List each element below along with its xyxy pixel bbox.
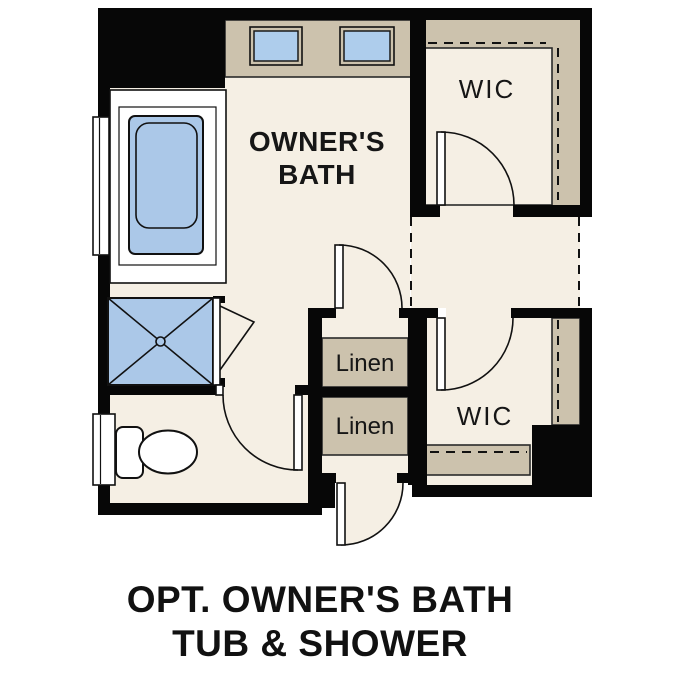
owners-bath-label-line1: OWNER'S bbox=[249, 126, 385, 157]
doorway-strip bbox=[440, 205, 513, 217]
door-panel bbox=[437, 318, 445, 390]
wall-bath-wic-divider bbox=[410, 20, 426, 205]
sink-basin bbox=[254, 31, 298, 61]
wic-bottom-label: WIC bbox=[457, 401, 514, 431]
door-jamb bbox=[216, 385, 223, 395]
bathtub-icon bbox=[110, 90, 226, 283]
wall-exit-right bbox=[397, 473, 412, 483]
wall-linen-divider bbox=[320, 387, 410, 397]
wic-top-shelving bbox=[424, 19, 580, 205]
plan-caption: OPT. OWNER'S BATH TUB & SHOWER bbox=[0, 578, 640, 666]
wic-bottom-shelf-right bbox=[552, 318, 580, 425]
toilet-icon bbox=[116, 427, 197, 478]
wic-bottom-shelf-bottom bbox=[423, 445, 530, 475]
wall-linen-right bbox=[408, 308, 427, 485]
wall-right-lower bbox=[580, 308, 592, 497]
tub-outer bbox=[129, 116, 203, 254]
owners-bath-label-line2: BATH bbox=[278, 159, 356, 190]
wall-toilet-top-left bbox=[108, 385, 223, 395]
wall-bottom-right bbox=[412, 485, 592, 497]
doorway-strip bbox=[336, 473, 402, 483]
wall-wic-corner-block bbox=[532, 425, 580, 485]
wall-wic-top-bottom bbox=[513, 205, 592, 217]
wall-bottom-left bbox=[98, 503, 322, 515]
door-panel bbox=[294, 395, 302, 470]
linen-top-label: Linen bbox=[336, 350, 395, 377]
door-swing-area bbox=[341, 483, 403, 545]
wall-top-left-block bbox=[98, 8, 225, 88]
passage-floor bbox=[411, 217, 580, 308]
wic-top-label: WIC bbox=[459, 74, 516, 104]
door-panel bbox=[337, 483, 345, 545]
shower-glass bbox=[213, 298, 220, 385]
wall-linen-left bbox=[308, 308, 322, 515]
plan-caption-line1: OPT. OWNER'S BATH bbox=[0, 578, 640, 622]
sink-basin bbox=[344, 31, 390, 61]
wall-top bbox=[225, 8, 592, 20]
wall-exit-jamb bbox=[320, 483, 335, 508]
window-icon bbox=[93, 414, 115, 485]
toilet-bowl bbox=[139, 431, 197, 474]
wall-right-upper bbox=[580, 8, 592, 217]
wall-center-right bbox=[511, 308, 592, 318]
door-panel bbox=[437, 132, 445, 205]
shower-drain bbox=[156, 337, 165, 346]
vanity bbox=[225, 20, 411, 77]
plan-caption-line2: TUB & SHOWER bbox=[0, 622, 640, 666]
floor-plan-page: OWNER'S BATH WIC WIC Linen Linen OPT. OW… bbox=[0, 0, 687, 687]
doorway-strip bbox=[223, 385, 295, 395]
linen-bottom-label: Linen bbox=[336, 413, 395, 440]
door-panel bbox=[335, 245, 343, 308]
wall-exit-left bbox=[308, 473, 336, 483]
window-icon bbox=[93, 117, 109, 255]
doorway-strip bbox=[446, 308, 511, 318]
wall-step bbox=[410, 205, 440, 217]
